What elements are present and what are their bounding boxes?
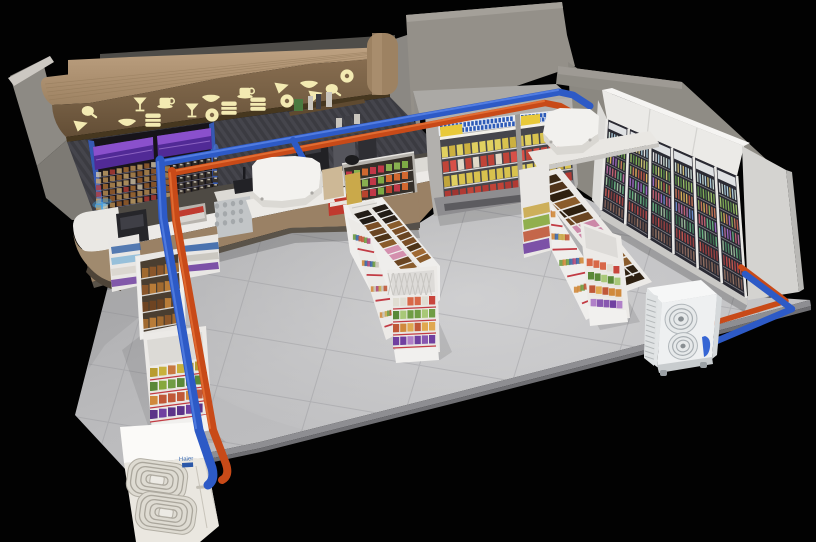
svg-text:Haier: Haier [179,456,194,463]
